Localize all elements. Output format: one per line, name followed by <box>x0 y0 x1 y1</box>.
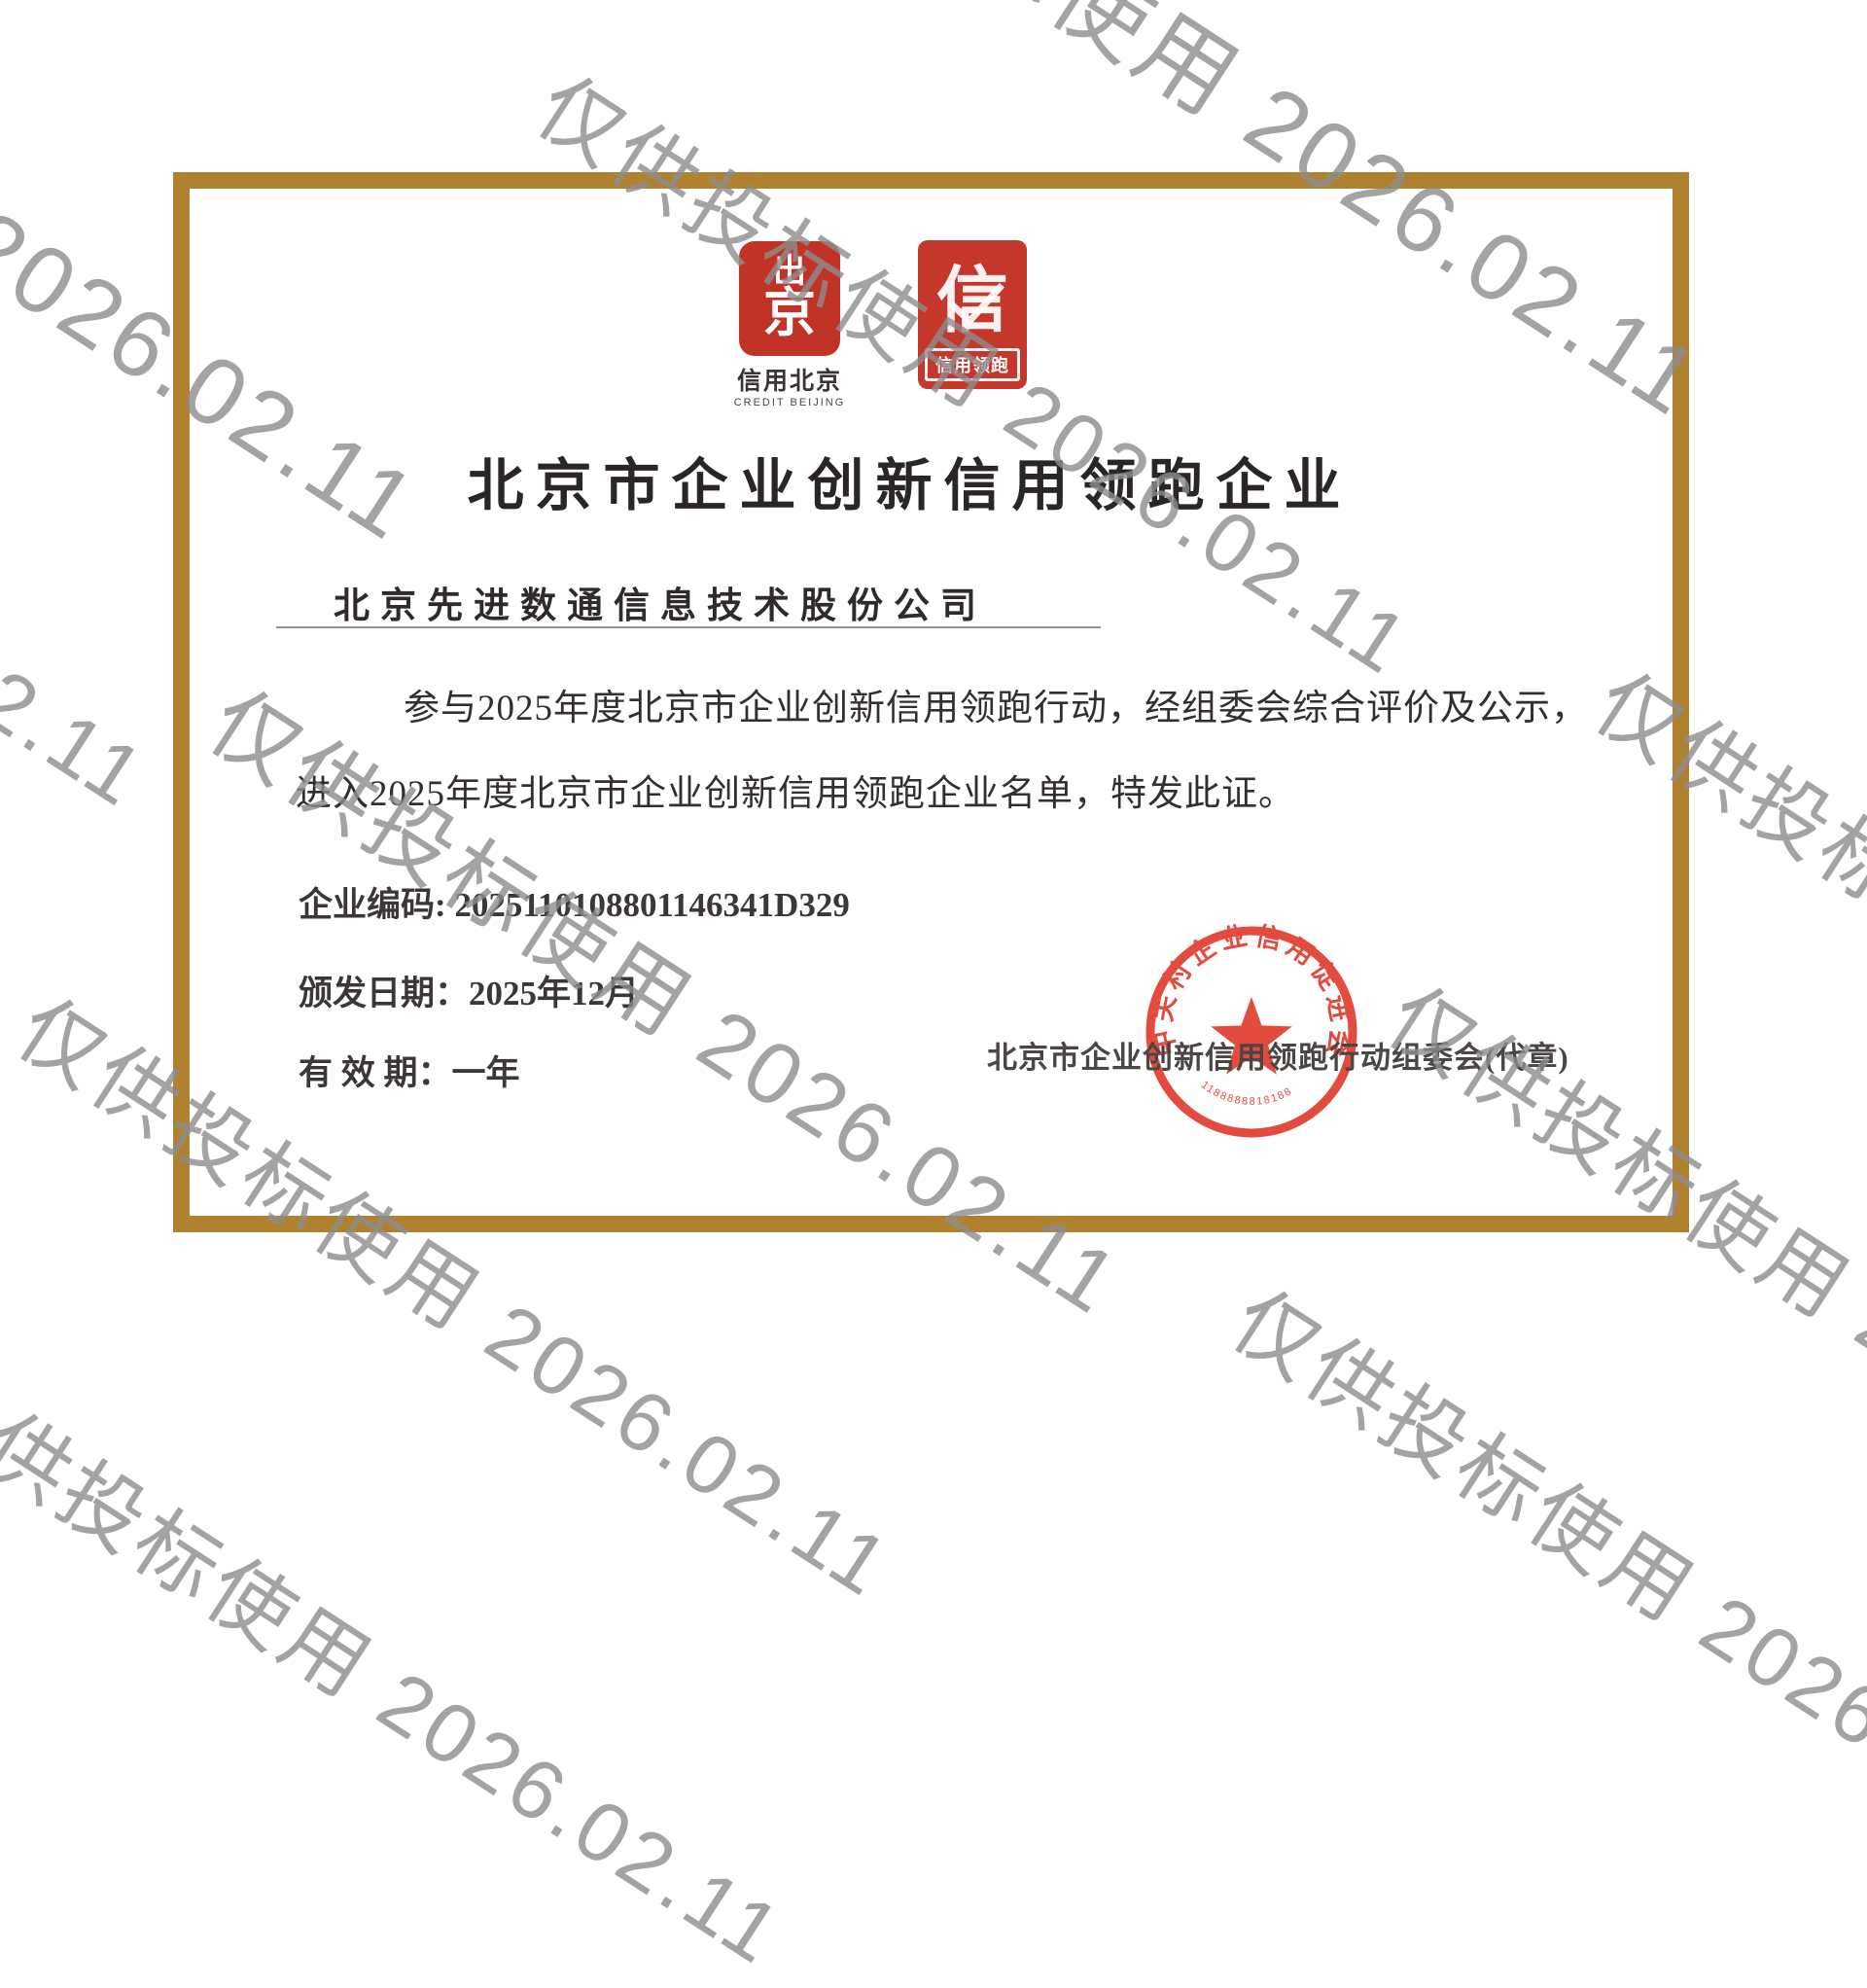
issue-date-row: 颁发日期：2025年12月 <box>299 966 639 1015</box>
emblem-glyph-bottom: 京 <box>763 286 816 340</box>
body-text-line1: 参与2025年度北京市企业创新信用领跑行动，经组委会综合评价及公示， <box>404 678 1588 730</box>
credit-leading-seal-icon: 信 信用领跑 <box>918 240 1027 389</box>
company-name: 北京先进数通信息技术股份公司 <box>276 576 1101 628</box>
validity-value: 一年 <box>452 1054 520 1092</box>
seal-label: 信用领跑 <box>925 348 1020 381</box>
credit-beijing-label-cn: 信用北京 <box>731 362 848 397</box>
validity-row: 有 效 期：一年 <box>299 1046 520 1095</box>
certificate-title: 北京市企业创新信用领跑企业 <box>173 440 1689 521</box>
credit-beijing-emblem-icon: 出 京 <box>739 241 840 356</box>
credit-beijing-logo: 出 京 信用北京 CREDIT BEIJING <box>731 241 848 408</box>
enterprise-code-label: 企业编码: <box>299 886 454 924</box>
company-name-line: 北京先进数通信息技术股份公司 <box>276 576 1101 628</box>
emblem-glyph-top: 出 <box>773 257 806 286</box>
issue-date-value: 2025年12月 <box>469 975 639 1012</box>
issue-date-label: 颁发日期： <box>299 975 469 1012</box>
body-text-line2: 进入2025年度北京市企业创新信用领跑企业名单，特发此证。 <box>296 763 1295 816</box>
enterprise-code-value: 2025110108801146341D329 <box>454 886 849 924</box>
watermark-text: 仅供投标使用 2026.02.11 <box>0 173 175 831</box>
watermark-text: 仅供投标使用 2026.02.11 <box>0 1331 812 1988</box>
official-stamp-icon: 中关村企业信用促进会 1188888818188 <box>1135 915 1368 1149</box>
stamp-serial: 1188888818188 <box>1199 1079 1293 1107</box>
credit-beijing-label-en: CREDIT BEIJING <box>731 397 848 408</box>
validity-label: 有 效 期： <box>299 1054 452 1092</box>
issuer-name: 北京市企业创新信用领跑行动组委会(代章) <box>987 1033 1569 1077</box>
certificate-page: { "watermark": { "text": "仅供投标使用 2026.02… <box>0 0 1867 1402</box>
watermark-text: 仅供投标使用 2026.02.11 <box>1213 1255 1867 1912</box>
enterprise-code-row: 企业编码: 2025110108801146341D329 <box>299 877 850 927</box>
svg-text:1188888818188: 1188888818188 <box>1199 1079 1293 1107</box>
